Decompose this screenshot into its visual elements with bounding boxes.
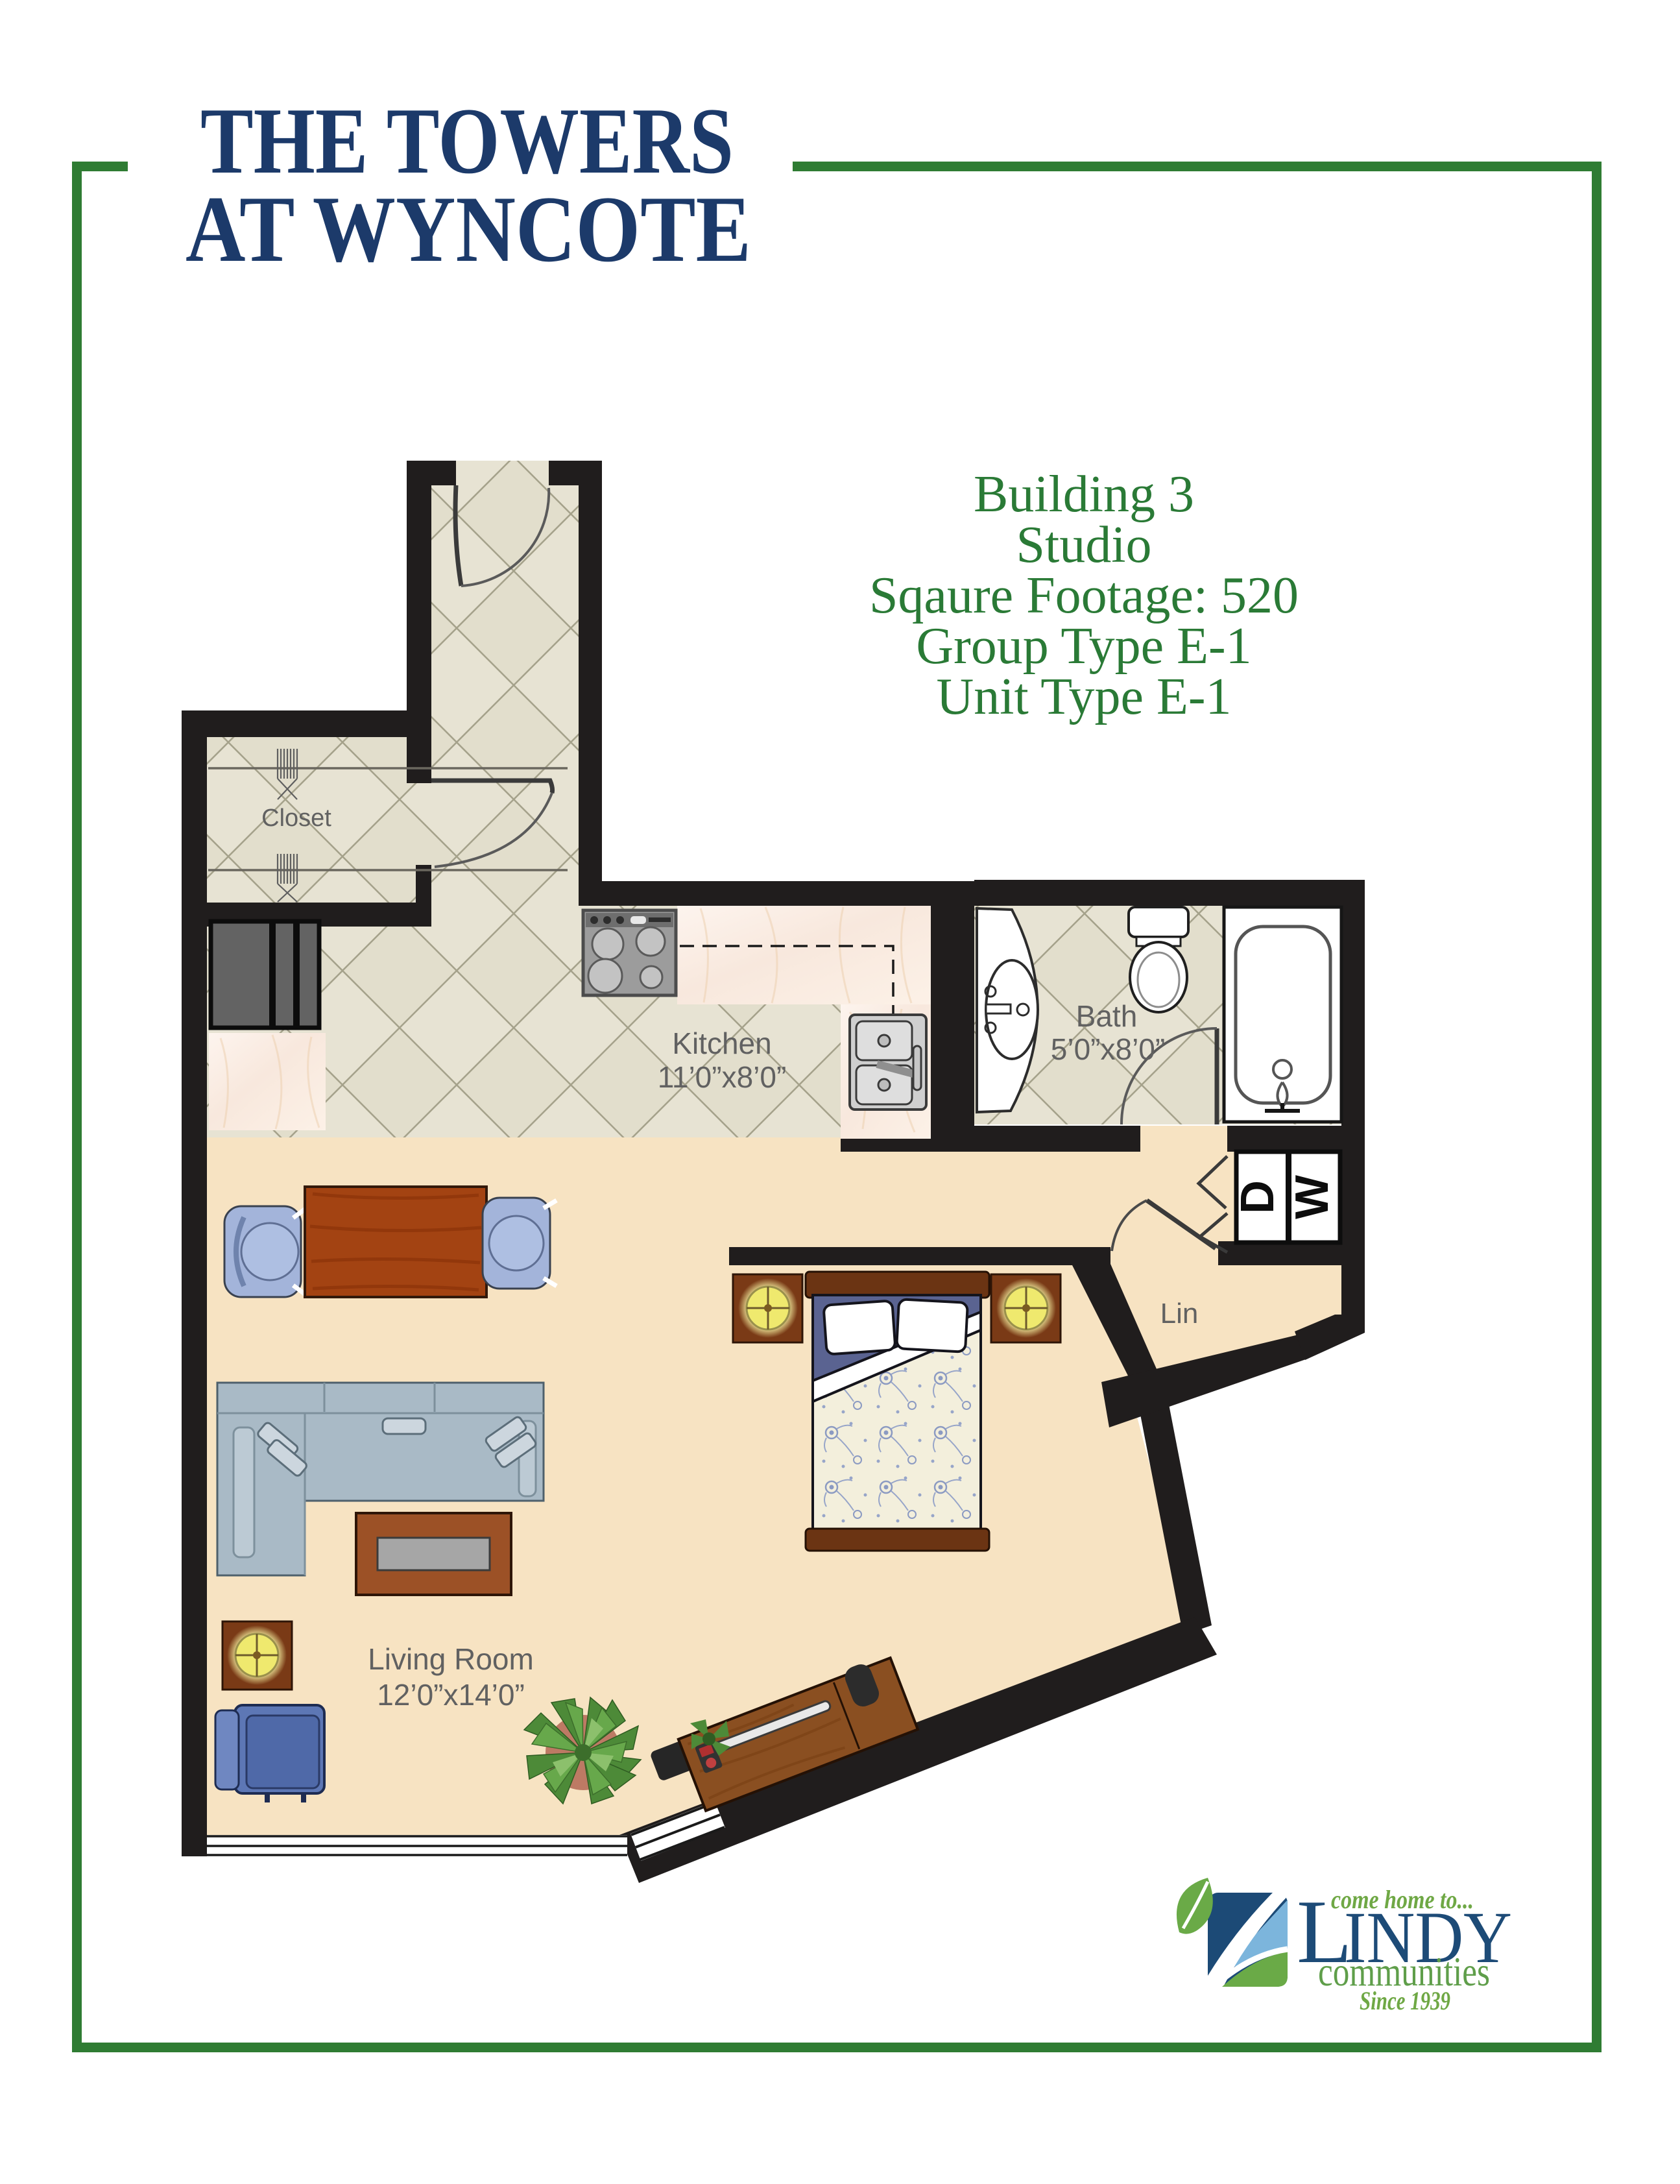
svg-text:W: W: [1286, 1175, 1338, 1219]
svg-text:11’0”x8’0”: 11’0”x8’0”: [658, 1060, 787, 1094]
svg-text:Sqaure Footage: 520: Sqaure Footage: 520: [869, 567, 1299, 624]
svg-text:Kitchen: Kitchen: [672, 1026, 771, 1060]
svg-text:Living Room: Living Room: [368, 1642, 534, 1676]
svg-text:Closet: Closet: [261, 805, 331, 832]
svg-text:Building 3: Building 3: [974, 466, 1194, 523]
svg-text:Studio: Studio: [1016, 516, 1152, 574]
svg-text:Unit Type E-1: Unit Type E-1: [936, 668, 1231, 725]
svg-text:Group Type E-1: Group Type E-1: [916, 618, 1251, 675]
svg-text:Since 1939: Since 1939: [1360, 1986, 1450, 2015]
svg-text:5’0”x8’0”: 5’0”x8’0”: [1051, 1032, 1165, 1066]
svg-text:AT WYNCOTE: AT WYNCOTE: [186, 176, 751, 282]
svg-text:Lin: Lin: [1160, 1298, 1199, 1329]
svg-text:Bath: Bath: [1076, 999, 1138, 1033]
svg-text:D: D: [1232, 1180, 1284, 1214]
svg-text:12’0”x14’0”: 12’0”x14’0”: [377, 1678, 525, 1712]
